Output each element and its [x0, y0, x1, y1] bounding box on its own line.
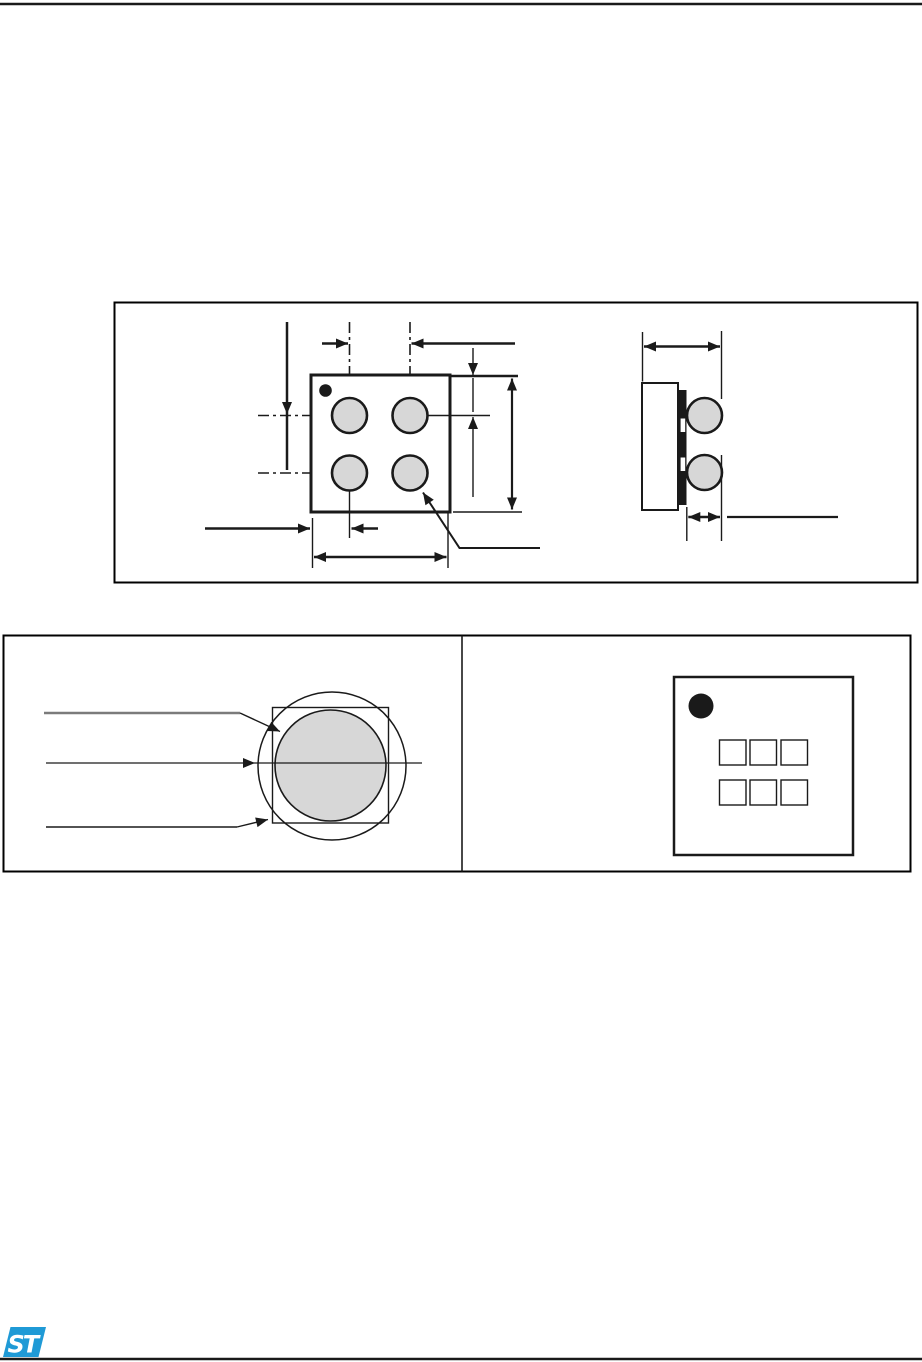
marking-pin1-dot-icon [689, 694, 714, 719]
side-bump-top [687, 398, 722, 433]
bump-detail-circle [275, 710, 386, 821]
die-body-outline [642, 383, 678, 510]
figure1-frame [115, 303, 918, 583]
side-view [642, 331, 838, 541]
bump-bottom-right [393, 456, 428, 491]
bump-bottom-left [332, 456, 367, 491]
leader-bottom-arrow [237, 820, 268, 828]
bump-layer-strip [679, 390, 687, 505]
strip-notch-top [681, 419, 686, 433]
figure-package-outline [115, 303, 918, 583]
bump-top-left [332, 398, 367, 433]
pin1-index-dot-icon [319, 384, 332, 397]
bottom-view [205, 322, 540, 568]
side-bump-bottom [687, 455, 722, 490]
bump-detail-panel [44, 692, 422, 840]
figure-detail-and-marking [4, 636, 911, 872]
bump-top-right [393, 398, 428, 433]
document-page: ST [0, 0, 922, 1362]
st-logo-icon: ST [3, 1327, 46, 1359]
st-logo-text: ST [8, 1331, 41, 1359]
leader-top-arrow [240, 713, 280, 732]
marking-panel [674, 677, 853, 855]
strip-notch-bottom [681, 458, 686, 472]
page-drawing-canvas: ST [0, 0, 922, 1362]
package-body-outline [311, 375, 450, 512]
